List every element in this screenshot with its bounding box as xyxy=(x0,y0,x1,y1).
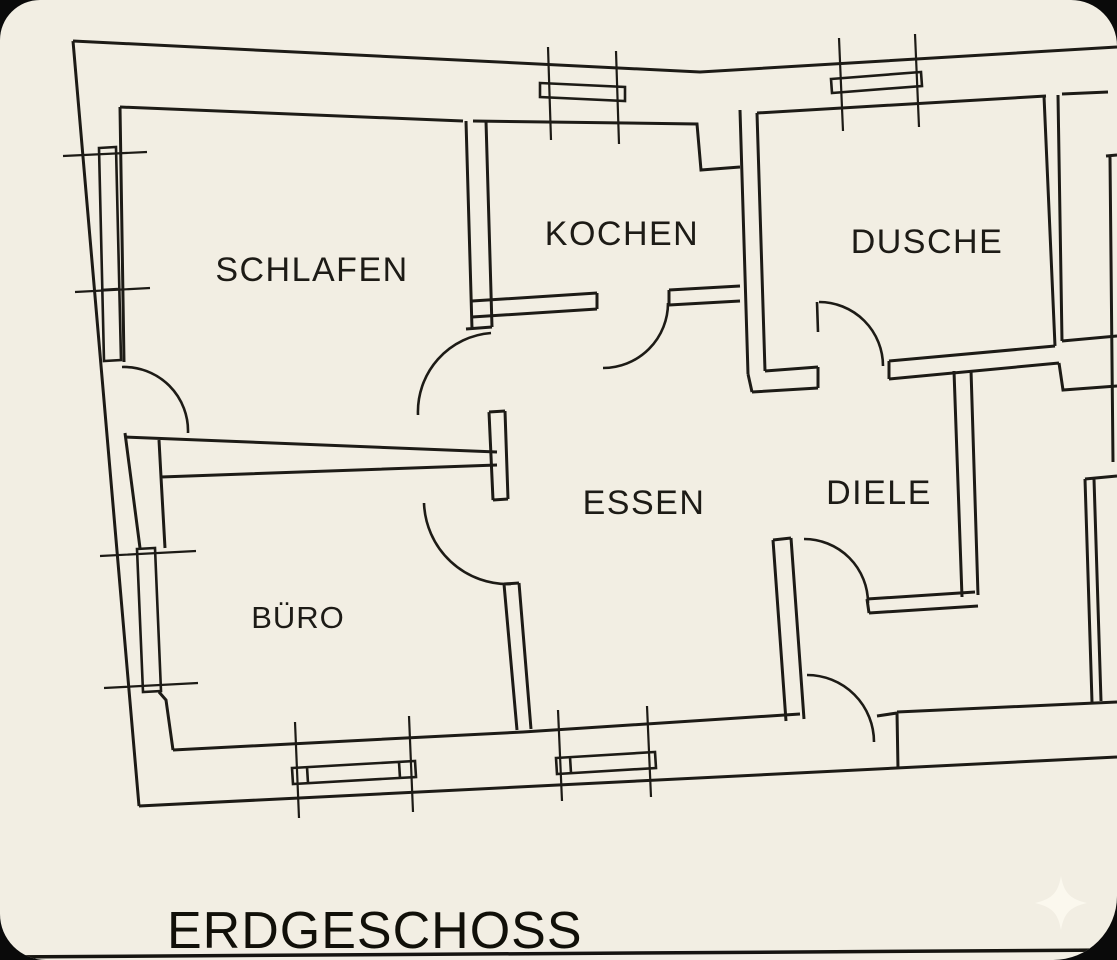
room-label-dusche: DUSCHE xyxy=(851,223,1004,261)
door-hall-south xyxy=(807,675,874,742)
exterior-walls xyxy=(73,41,1117,806)
room-labels: SCHLAFEN KOCHEN DUSCHE ESSEN DIELE BÜRO xyxy=(215,215,1003,635)
floorplan-card: SCHLAFEN KOCHEN DUSCHE ESSEN DIELE BÜRO … xyxy=(0,0,1117,960)
door-kochen xyxy=(603,303,668,368)
interior-walls xyxy=(125,95,1117,769)
window-dusche-north xyxy=(831,72,922,93)
door-buero-essen xyxy=(424,503,511,584)
room-label-schlafen: SCHLAFEN xyxy=(215,251,408,289)
room-label-diele: DIELE xyxy=(826,474,932,512)
sparkle-icon xyxy=(1035,876,1087,930)
door-schlafen-essen xyxy=(418,333,491,415)
windows xyxy=(63,34,922,818)
room-label-kochen: KOCHEN xyxy=(545,215,699,253)
door-diele xyxy=(804,539,868,603)
window-kochen-north xyxy=(540,83,625,101)
floorplan-drawing: SCHLAFEN KOCHEN DUSCHE ESSEN DIELE BÜRO … xyxy=(0,0,1117,960)
door-arcs xyxy=(122,302,883,742)
room-label-buero: BÜRO xyxy=(251,600,345,635)
window-schlafen-west xyxy=(99,147,121,361)
window-buero-south xyxy=(292,761,416,784)
door-dusche xyxy=(817,302,883,366)
room-label-essen: ESSEN xyxy=(583,484,706,522)
floor-title: ERDGESCHOSS xyxy=(167,902,583,960)
window-buero-west xyxy=(137,548,161,692)
window-essen-south xyxy=(556,752,656,774)
door-schlafen-entry xyxy=(122,367,188,433)
